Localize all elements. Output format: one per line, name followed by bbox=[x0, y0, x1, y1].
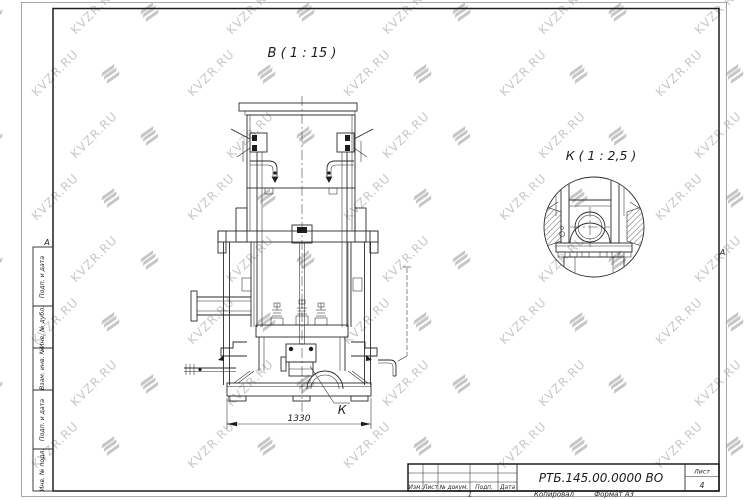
drawing-sheet: KVZR.RUKVZR.RUKVZR.RUKVZR.RUKVZR.RUKVZR.… bbox=[0, 0, 750, 500]
left-stamp-column: Подп. и дата Инв. № дубл. Взам. инв. № П… bbox=[33, 238, 53, 491]
stamp-label: Инв. № подл. bbox=[39, 449, 46, 492]
col-list: Лист bbox=[422, 485, 438, 491]
stamp-label: Взам. инв. № bbox=[39, 348, 46, 390]
col-data: Дата bbox=[499, 485, 515, 491]
fold-mark-left: А bbox=[43, 238, 49, 247]
main-view-label: В ( 1 : 15 ) bbox=[268, 46, 337, 61]
sheet-frame bbox=[22, 3, 727, 497]
main-view: В ( 1 : 15 ) bbox=[184, 46, 411, 429]
spring-stacks bbox=[271, 300, 327, 325]
doc-number: РТБ.145.00.0000 ВО bbox=[539, 471, 663, 485]
fold-mark-right: А bbox=[719, 248, 725, 257]
engineering-drawing: Подп. и дата Инв. № дубл. Взам. инв. № П… bbox=[0, 0, 750, 500]
title-block: Изм. Лист № докум. Подп. Дата РТБ.145.00… bbox=[408, 464, 719, 491]
drive-mechanism bbox=[281, 344, 316, 376]
footer-left: 1 bbox=[468, 491, 472, 499]
col-izm: Изм. bbox=[409, 485, 423, 491]
stamp-label: Подп. и дата bbox=[39, 399, 46, 441]
dimension-value: 1330 bbox=[288, 414, 311, 424]
col-ndokum: № докум. bbox=[439, 485, 469, 491]
detail-view-label: К ( 1 : 2,5 ) bbox=[566, 148, 637, 163]
detail-view: К ( 1 : 2,5 ) bbox=[544, 148, 644, 279]
detail-ref-label: К bbox=[338, 403, 347, 417]
dimension-1330: 1330 bbox=[227, 398, 371, 429]
col-podp: Подп. bbox=[475, 485, 493, 491]
sheet-number: 4 bbox=[700, 481, 705, 490]
sheet-label: Лист bbox=[693, 469, 710, 476]
footer-copied: Копировал bbox=[534, 491, 575, 499]
stamp-label: Подп. и дата bbox=[39, 256, 46, 298]
stamp-label: Инв. № дубл. bbox=[38, 306, 46, 348]
footer-format: Формат А3 bbox=[594, 491, 634, 499]
